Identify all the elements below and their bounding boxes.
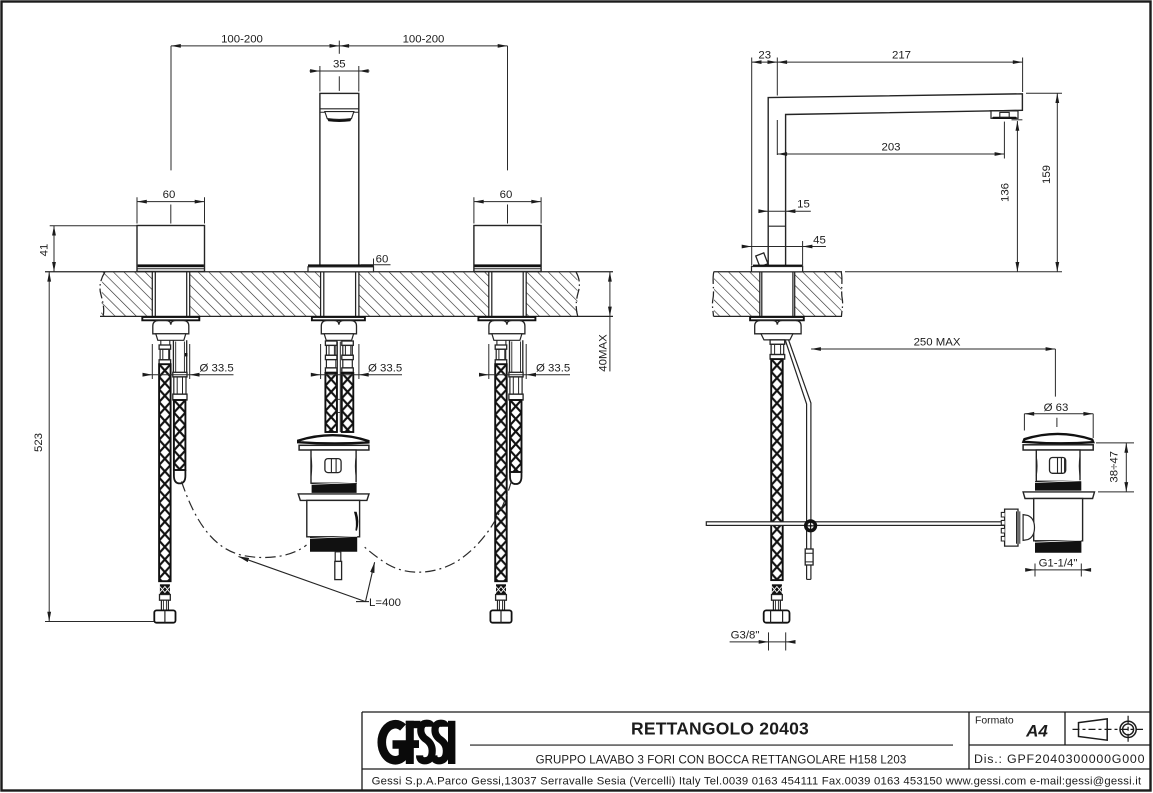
svg-text:GRUPPO LAVABO 3 FORI CON BOCCA: GRUPPO LAVABO 3 FORI CON BOCCA RETTANGOL…	[536, 755, 907, 767]
svg-text:A4: A4	[1025, 722, 1048, 741]
svg-text:203: 203	[881, 142, 900, 154]
svg-text:38÷47: 38÷47	[1109, 451, 1121, 483]
svg-text:100-200: 100-200	[403, 34, 445, 46]
svg-text:250 MAX: 250 MAX	[914, 337, 961, 349]
svg-text:15: 15	[797, 199, 810, 211]
svg-text:40MAX: 40MAX	[598, 334, 610, 372]
svg-text:217: 217	[892, 50, 911, 62]
svg-text:159: 159	[1041, 165, 1053, 184]
svg-text:60: 60	[163, 189, 176, 201]
svg-text:Ø 33.5: Ø 33.5	[368, 362, 402, 374]
svg-text:G1-1/4": G1-1/4"	[1039, 557, 1078, 569]
svg-text:23: 23	[758, 50, 771, 62]
svg-text:41: 41	[38, 244, 50, 257]
svg-text:45: 45	[813, 235, 826, 247]
svg-text:G3/8": G3/8"	[731, 629, 760, 641]
svg-text:L=400: L=400	[369, 597, 401, 609]
svg-text:Gessi S.p.A.Parco Gessi,13037: Gessi S.p.A.Parco Gessi,13037 Serravalle…	[372, 775, 1142, 787]
svg-text:136: 136	[1000, 183, 1012, 202]
svg-text:523: 523	[33, 433, 45, 452]
svg-text:Dis.: GPF2040300000G000: Dis.: GPF2040300000G000	[974, 752, 1145, 766]
svg-text:RETTANGOLO 20403: RETTANGOLO 20403	[631, 719, 809, 739]
svg-text:60: 60	[376, 254, 389, 266]
svg-text:Ø 33.5: Ø 33.5	[200, 362, 234, 374]
svg-text:35: 35	[333, 59, 346, 71]
svg-text:Ø 33.5: Ø 33.5	[536, 362, 570, 374]
svg-text:60: 60	[500, 189, 513, 201]
svg-text:Ø 63: Ø 63	[1044, 402, 1069, 414]
svg-text:100-200: 100-200	[221, 34, 263, 46]
svg-text:Formato: Formato	[975, 716, 1014, 727]
